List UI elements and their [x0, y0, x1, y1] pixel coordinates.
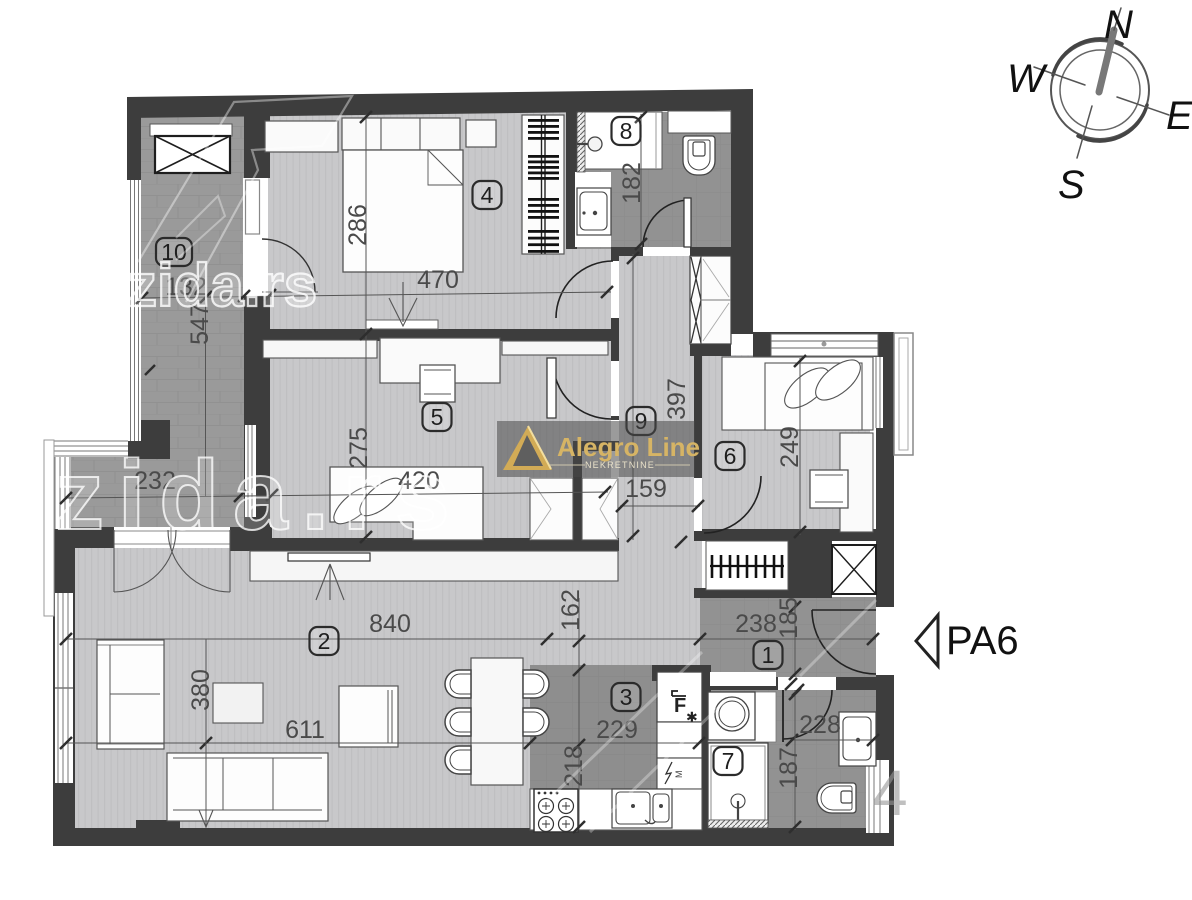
- svg-text:8: 8: [620, 118, 633, 144]
- svg-text:5: 5: [431, 404, 444, 430]
- svg-text:397: 397: [663, 378, 691, 420]
- svg-text:2: 2: [318, 628, 331, 654]
- svg-text:F: F: [674, 695, 686, 717]
- svg-text:7: 7: [722, 748, 735, 774]
- svg-text:187: 187: [775, 747, 803, 789]
- svg-text:N: N: [1104, 3, 1133, 47]
- svg-text:4: 4: [481, 182, 494, 208]
- svg-text:W: W: [1007, 57, 1048, 101]
- svg-text:Alegro Line: Alegro Line: [557, 432, 700, 462]
- svg-text:380: 380: [187, 669, 215, 711]
- svg-text:840: 840: [369, 610, 411, 638]
- svg-text:3: 3: [620, 684, 633, 710]
- svg-text:4: 4: [872, 757, 908, 829]
- svg-text:162: 162: [557, 589, 585, 631]
- svg-text:611: 611: [285, 716, 325, 744]
- svg-text:zida.rs: zida.rs: [55, 440, 463, 550]
- svg-text:185: 185: [775, 597, 803, 639]
- svg-text:238: 238: [735, 610, 777, 638]
- svg-text:228: 228: [799, 711, 841, 739]
- svg-text:E: E: [1166, 94, 1192, 138]
- svg-text:NEKRETNINE: NEKRETNINE: [585, 460, 655, 470]
- svg-text:470: 470: [417, 266, 459, 294]
- svg-text:286: 286: [344, 204, 372, 246]
- svg-text:6: 6: [724, 443, 737, 469]
- svg-text:zida.rs: zida.rs: [127, 252, 317, 319]
- svg-text:PA6: PA6: [946, 619, 1019, 663]
- svg-text:249: 249: [776, 426, 804, 468]
- svg-text:M: M: [674, 771, 684, 779]
- svg-text:182: 182: [618, 162, 646, 204]
- svg-text:1: 1: [762, 642, 775, 668]
- svg-text:159: 159: [625, 475, 667, 503]
- svg-text:S: S: [1058, 163, 1085, 207]
